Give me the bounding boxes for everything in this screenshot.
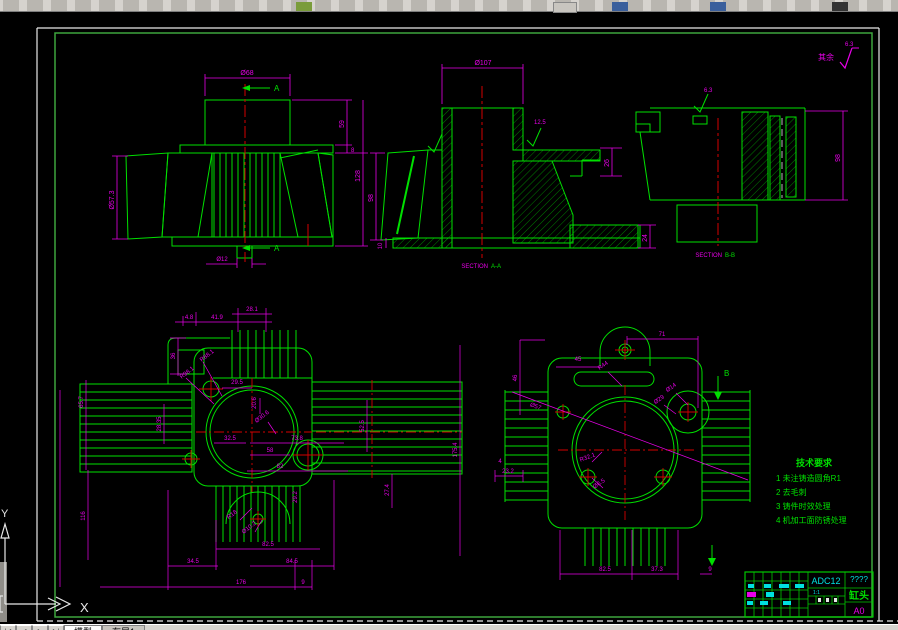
ucs-x-label: X bbox=[80, 600, 89, 615]
title-block-marks bbox=[747, 584, 837, 605]
dim-text: Ø107 bbox=[474, 60, 491, 67]
toolbar-button[interactable] bbox=[832, 2, 848, 11]
section-label-letters: A-A bbox=[491, 264, 501, 270]
dim-text: Ø12 bbox=[216, 257, 228, 263]
roughness-value: 6.3 bbox=[845, 42, 854, 48]
dim-text: 34.5 bbox=[187, 559, 199, 565]
dim-text: R32.1 bbox=[579, 452, 597, 463]
paper-size: A0 bbox=[853, 606, 864, 616]
tech-requirements: 技术要求 1 未注铸造圆角R1 2 去毛刺 3 铸件时效处理 4 机加工面防锈处… bbox=[776, 457, 847, 525]
dim-text: Ø68 bbox=[240, 70, 253, 77]
dim-text: 82.5 bbox=[262, 542, 274, 548]
section-cut-b: B bbox=[708, 369, 729, 566]
drawing-code: ???? bbox=[850, 575, 868, 584]
tab-nav-prev[interactable]: ◀ bbox=[16, 625, 32, 630]
material-label: ADC12 bbox=[811, 576, 840, 586]
roughness-value: 6.3 bbox=[704, 88, 713, 94]
cad-window: A A Ø68 59 8 128 Ø57.3 Ø12 bbox=[0, 0, 898, 630]
dimension-lines bbox=[495, 336, 748, 580]
dim-text: R88.1 bbox=[199, 349, 216, 364]
dim-text: 71 bbox=[659, 332, 666, 338]
dim-text: Ø29 bbox=[653, 394, 666, 406]
tech-req-item: 1 未注铸造圆角R1 bbox=[776, 473, 841, 483]
dim-text: 98 bbox=[835, 154, 842, 162]
dim-text: 176 bbox=[236, 580, 247, 586]
dim-text: 82 bbox=[277, 464, 284, 470]
tab-model[interactable]: 模型 bbox=[64, 625, 102, 630]
dim-text: 20.6 bbox=[252, 397, 258, 409]
toolbar-button[interactable] bbox=[710, 2, 726, 11]
tab-layout1[interactable]: 布局1 bbox=[102, 625, 145, 630]
dim-text: 27.4 bbox=[385, 484, 391, 496]
dim-text: 32.5 bbox=[224, 436, 236, 442]
toolbar-button[interactable] bbox=[296, 2, 312, 11]
tab-nav-last[interactable]: ▶| bbox=[48, 625, 64, 630]
scale-value: 1:1 bbox=[813, 590, 820, 596]
svg-text:A: A bbox=[274, 244, 280, 253]
section-label: SECTION bbox=[461, 264, 488, 270]
part-name: 缸头 bbox=[848, 589, 869, 602]
section-bb-view: 6.3 98 SECTION B-B bbox=[636, 88, 848, 259]
roughness-symbol bbox=[694, 94, 708, 112]
sheet-border bbox=[37, 28, 898, 621]
window-edge bbox=[0, 562, 7, 622]
dim-text: 4 bbox=[498, 459, 502, 465]
dim-text: Ø57.3 bbox=[109, 190, 116, 209]
top-view: 4.8 41.9 28.1 36 R88.1 R98.1 29.5 20.6 Ø… bbox=[60, 307, 462, 590]
dimension-lines bbox=[112, 74, 368, 268]
front-view: A A Ø68 59 8 128 Ø57.3 Ø12 bbox=[109, 70, 368, 268]
svg-text:A: A bbox=[274, 84, 280, 93]
svg-text:B: B bbox=[724, 369, 729, 378]
dim-text: 29.5 bbox=[231, 380, 243, 386]
dim-text: 28.35 bbox=[157, 416, 163, 432]
section-label: SECTION bbox=[695, 253, 722, 259]
dim-text: 52.5 bbox=[360, 420, 366, 432]
tech-req-item: 3 铸件时效处理 bbox=[776, 501, 831, 511]
dim-text: 23.2 bbox=[502, 469, 514, 475]
dim-text: 37.3 bbox=[651, 567, 663, 573]
dimension-lines bbox=[60, 308, 460, 590]
roughness-note: 其余 6.3 bbox=[818, 42, 859, 68]
tech-req-title: 技术要求 bbox=[796, 457, 833, 468]
dim-text: 58 bbox=[267, 448, 274, 454]
toolbar[interactable] bbox=[0, 0, 898, 12]
layout-tab-bar: |◀ ◀ ▶ ▶| 模型 布局1 bbox=[0, 624, 898, 630]
drawing-canvas: A A Ø68 59 8 128 Ø57.3 Ø12 bbox=[0, 0, 898, 630]
title-block: ADC12 ???? 缸头 A0 1:1 bbox=[745, 572, 873, 617]
toolbar-separator bbox=[553, 2, 577, 13]
dim-text: 45 bbox=[575, 357, 582, 363]
dim-text: 116 bbox=[81, 511, 87, 521]
dim-text: 128 bbox=[355, 170, 362, 182]
roughness-value: 12.5 bbox=[534, 120, 546, 126]
dim-text: 46 bbox=[513, 374, 519, 381]
dim-text: 29.2 bbox=[293, 491, 299, 503]
ucs-y-label: Y bbox=[1, 508, 9, 520]
dim-text: 82.5 bbox=[599, 567, 611, 573]
dim-text: 10 bbox=[378, 242, 384, 249]
section-aa-view: 12.5 Ø107 98 10 26 24 SECTION A-A bbox=[368, 60, 656, 270]
tech-req-item: 2 去毛刺 bbox=[776, 487, 807, 497]
toolbar-button[interactable] bbox=[612, 2, 628, 11]
dim-text: 4.8 bbox=[185, 315, 194, 321]
dim-text: Ø57 bbox=[529, 402, 542, 412]
roughness-check-icon bbox=[840, 48, 852, 68]
bottom-view: B 71 45 R44 Ø14 Ø29 46 Ø57 R32.1 Ø6.5 23… bbox=[495, 327, 750, 580]
tab-nav-next[interactable]: ▶ bbox=[32, 625, 48, 630]
dim-text: 73.8 bbox=[291, 436, 303, 442]
dim-text: Ø14 bbox=[665, 382, 678, 394]
dim-text: 175.4 bbox=[453, 442, 459, 458]
ucs-icon: Y X bbox=[0, 508, 89, 615]
dim-text: 36 bbox=[171, 352, 177, 359]
dim-text: 41.9 bbox=[211, 315, 223, 321]
tech-req-item: 4 机加工面防锈处理 bbox=[776, 515, 847, 525]
section-label-letters: B-B bbox=[725, 253, 735, 259]
dim-text: R44 bbox=[597, 360, 610, 372]
dim-text: 65.7 bbox=[79, 396, 85, 408]
dim-text: 59 bbox=[339, 120, 346, 128]
tab-nav-first[interactable]: |◀ bbox=[0, 625, 16, 630]
roughness-prefix: 其余 bbox=[818, 52, 834, 62]
dim-text: 26 bbox=[604, 159, 611, 167]
dim-text: 9 bbox=[301, 580, 305, 586]
dim-text: 28.1 bbox=[246, 307, 258, 313]
dim-text: 98 bbox=[368, 194, 375, 202]
dim-text: 84.5 bbox=[286, 559, 298, 565]
dim-text: 9 bbox=[708, 567, 712, 573]
dim-text: 24 bbox=[642, 234, 649, 242]
